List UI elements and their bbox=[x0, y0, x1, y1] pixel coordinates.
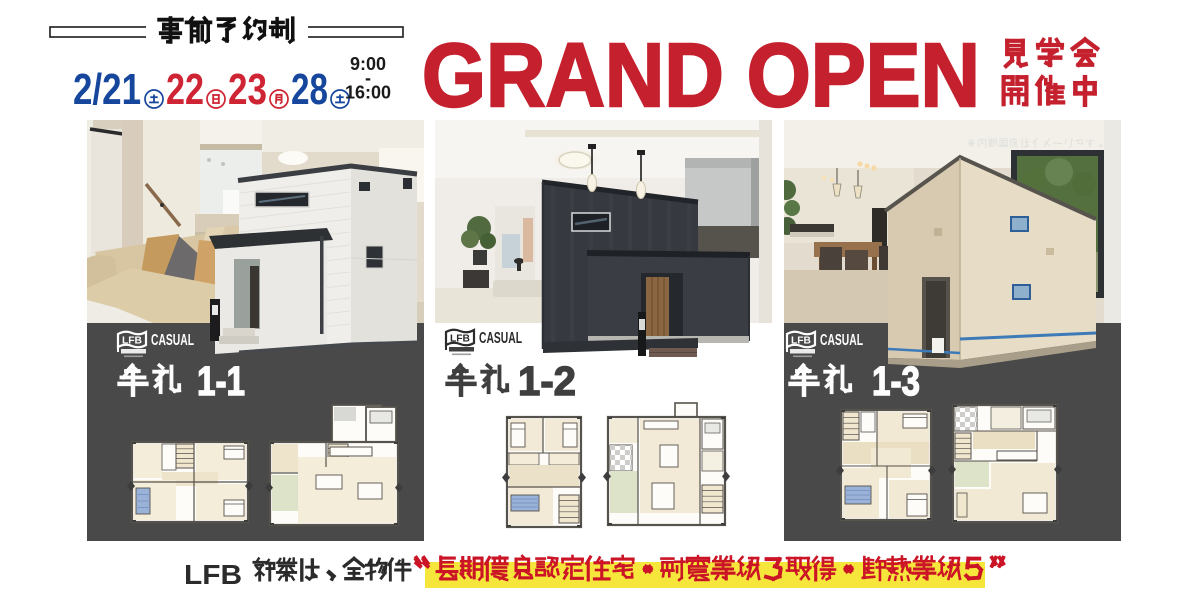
svg-text:2/21: 2/21 bbox=[73, 65, 141, 114]
svg-text:LFB: LFB bbox=[184, 559, 242, 590]
svg-text:LFB: LFB bbox=[450, 334, 470, 345]
svg-text:22: 22 bbox=[166, 65, 204, 114]
svg-text:28: 28 bbox=[291, 65, 328, 114]
svg-text:1-3: 1-3 bbox=[872, 358, 920, 404]
svg-text:CASUAL: CASUAL bbox=[820, 332, 863, 349]
svg-text:LFB: LFB bbox=[791, 336, 811, 347]
svg-text:LFB: LFB bbox=[122, 336, 142, 347]
svg-text:CASUAL: CASUAL bbox=[151, 332, 194, 349]
svg-text:1-2: 1-2 bbox=[518, 358, 576, 404]
svg-text:16:00: 16:00 bbox=[345, 83, 391, 103]
svg-text:CASUAL: CASUAL bbox=[479, 330, 522, 347]
svg-text:1-1: 1-1 bbox=[197, 358, 245, 404]
svg-text:GRAND OPEN: GRAND OPEN bbox=[422, 26, 980, 120]
svg-text:23: 23 bbox=[228, 65, 267, 114]
